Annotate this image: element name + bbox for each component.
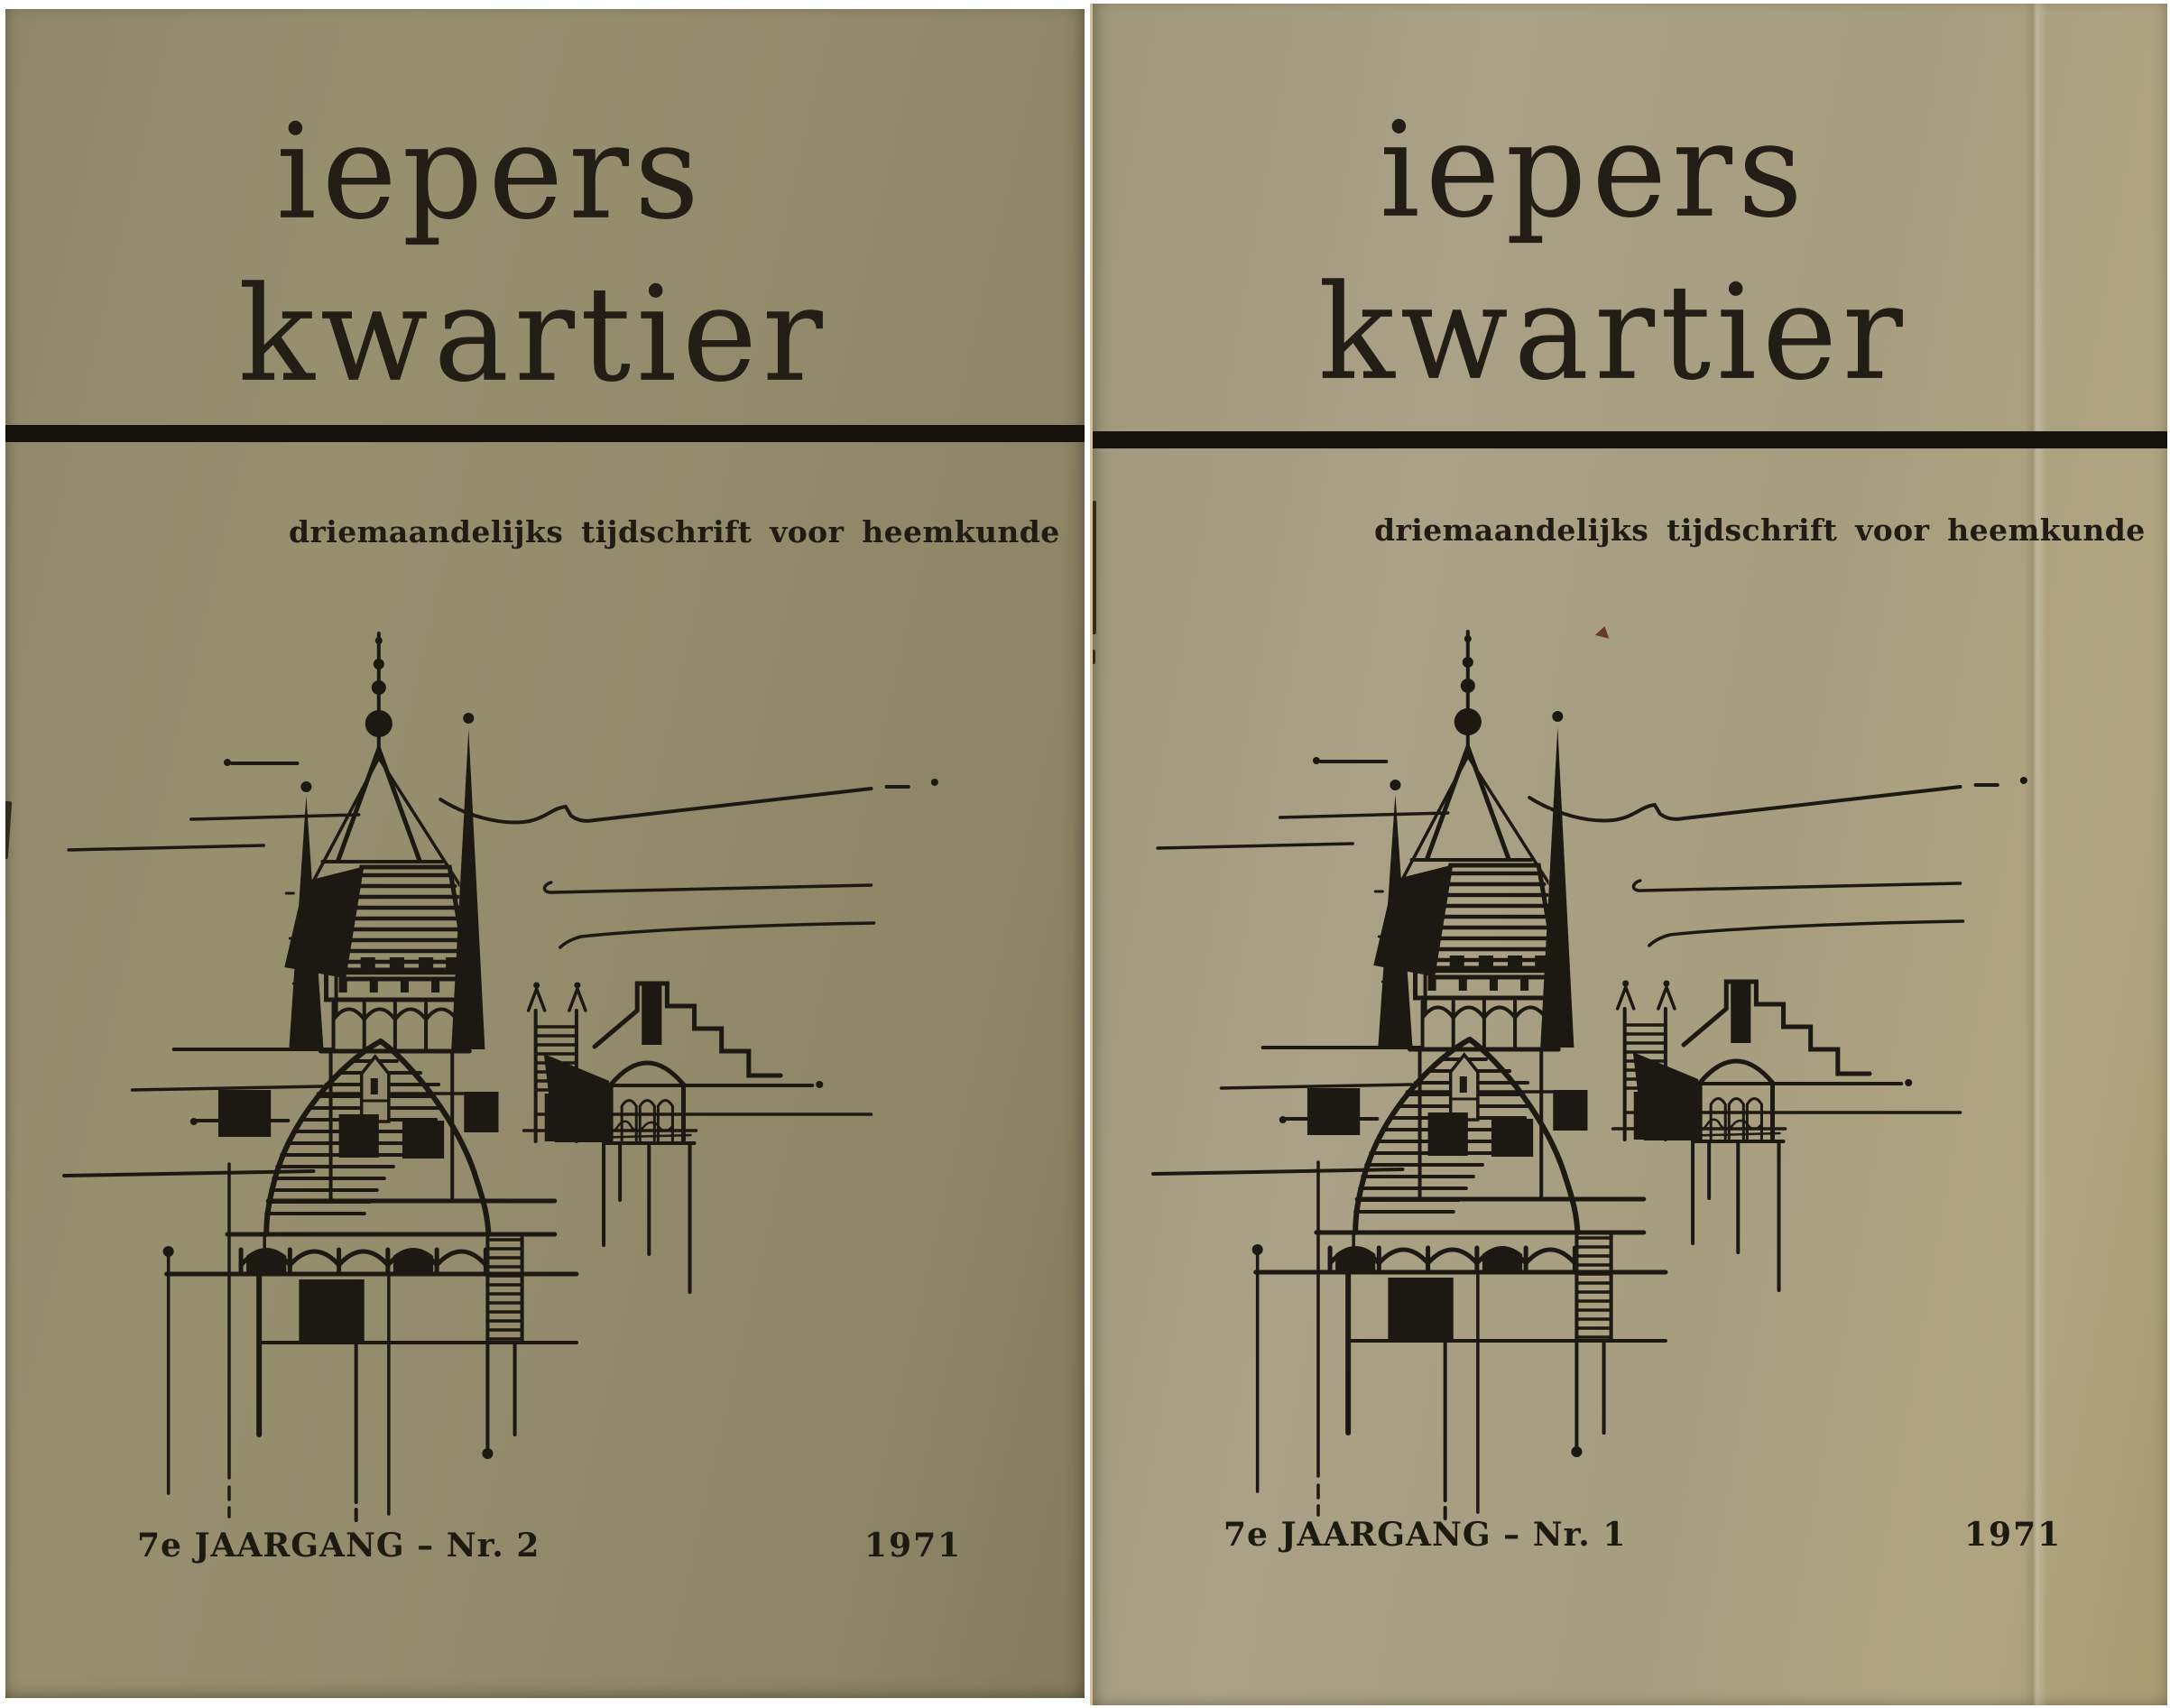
magazine-title-line1: iepers bbox=[1380, 106, 1808, 237]
year-label: 1971 bbox=[1964, 1516, 2062, 1554]
magazine-title-line2: kwartier bbox=[1318, 268, 1908, 400]
magazine-subtitle: driemaandelijks tijdschrift voor heemkun… bbox=[1374, 512, 2146, 548]
year-label: 1971 bbox=[864, 1527, 962, 1565]
cover-nr1: iepers kwartier driemaandelijks tijdschr… bbox=[1090, 4, 2167, 1705]
magazine-title-line2: kwartier bbox=[238, 270, 828, 402]
cover-nr2: iepers kwartier driemaandelijks tijdschr… bbox=[5, 9, 1085, 1698]
staple bbox=[1091, 501, 1096, 634]
divider-band bbox=[5, 425, 1085, 442]
staple bbox=[5, 801, 12, 859]
photo-of-two-magazine-covers: iepers kwartier driemaandelijks tijdschr… bbox=[0, 0, 2170, 1708]
divider-band bbox=[1093, 431, 2167, 448]
staple bbox=[1092, 650, 1095, 664]
towers-sketch-illustration bbox=[1140, 621, 2046, 1528]
edition-label: 7e JAARGANG – Nr. 1 bbox=[1224, 1516, 1626, 1554]
edition-label: 7e JAARGANG – Nr. 2 bbox=[137, 1527, 540, 1565]
towers-sketch-illustration bbox=[51, 623, 957, 1529]
magazine-subtitle: driemaandelijks tijdschrift voor heemkun… bbox=[289, 514, 1060, 549]
magazine-title-line1: iepers bbox=[276, 107, 705, 239]
